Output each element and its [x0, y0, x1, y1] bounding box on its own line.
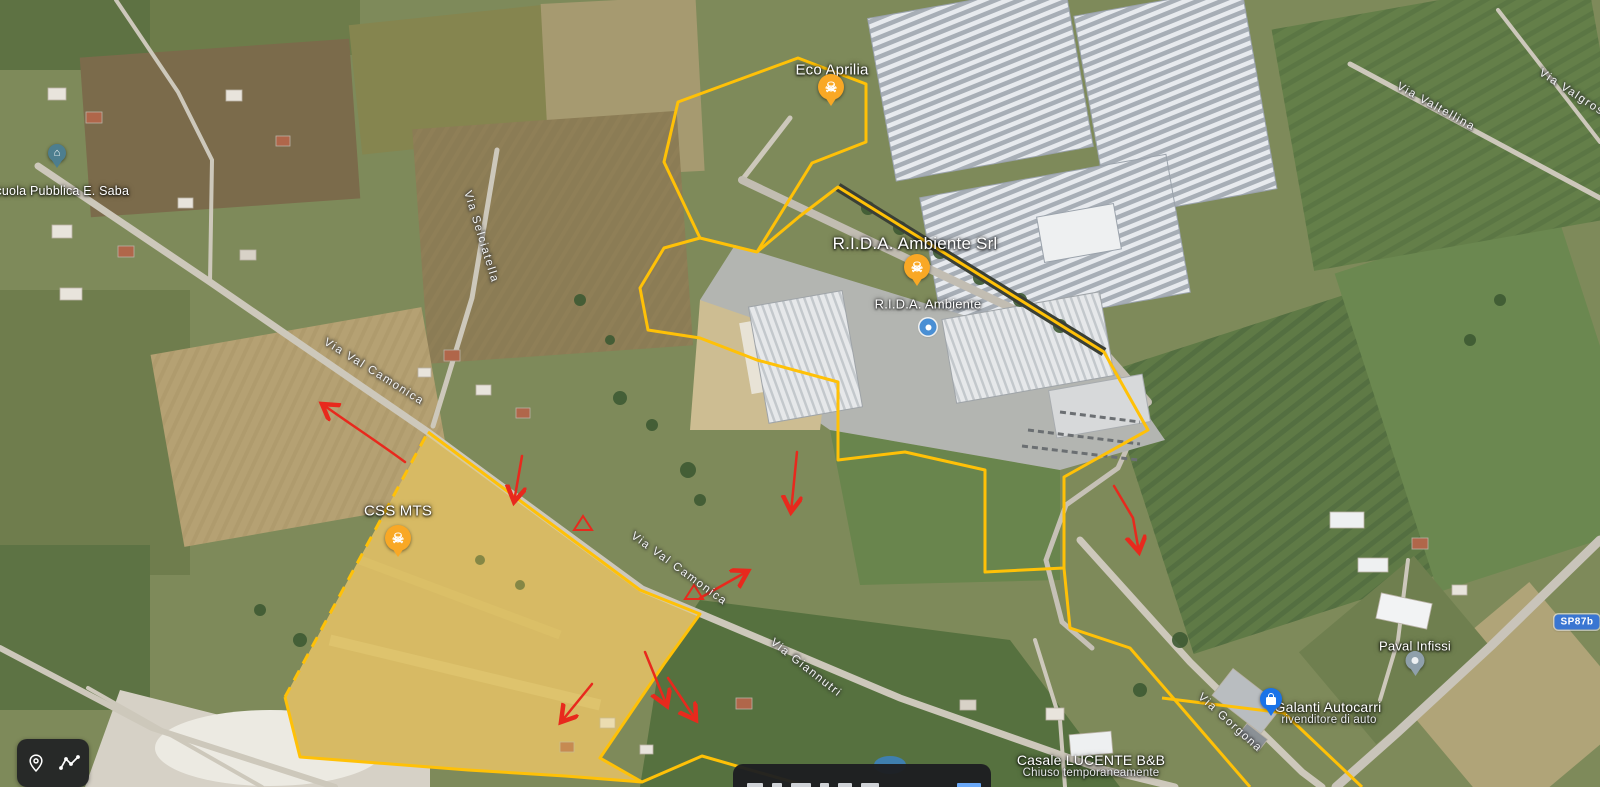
- skull-icon: ☠: [825, 80, 838, 94]
- poi-label-casale[interactable]: Casale LUCENTE B&B: [1017, 752, 1165, 768]
- skull-icon: ☠: [911, 260, 924, 274]
- clipped-text-fragment: [791, 783, 811, 787]
- poi-label-rida-marker[interactable]: R.I.D.A. Ambiente: [875, 297, 982, 312]
- map-toolbar[interactable]: [17, 739, 89, 787]
- clipped-text-fragment: [772, 783, 782, 787]
- skull-icon: ☠: [392, 531, 405, 545]
- css-mts-hazard-pin[interactable]: ☠: [385, 525, 411, 563]
- eco-aprilia-hazard-pin[interactable]: ☠: [818, 74, 844, 112]
- poi-label-school[interactable]: Scuola Pubblica E. Saba: [0, 184, 129, 198]
- poi-dot-icon: [1412, 657, 1419, 664]
- measure-path-icon: [59, 753, 81, 773]
- clipped-text-fragments: [747, 783, 981, 787]
- clipped-text-fragment: [861, 783, 879, 787]
- poi-sublabel-galanti: rivenditore di auto: [1281, 714, 1376, 726]
- galanti-store-pin[interactable]: [1260, 688, 1282, 722]
- location-pin-icon: [26, 753, 46, 773]
- poi-sublabel-casale: Chiuso temporaneamente: [1023, 767, 1160, 779]
- rida-hazard-pin[interactable]: ☠: [904, 254, 930, 292]
- paval-pin[interactable]: [1406, 651, 1425, 682]
- poi-label-rida-title[interactable]: R.I.D.A. Ambiente Srl: [833, 234, 998, 254]
- poi-dot-icon: [925, 324, 931, 330]
- shopping-bag-icon: [1266, 697, 1276, 705]
- poi-label-css-mts[interactable]: CSS MTS: [364, 503, 432, 520]
- measure-button[interactable]: [56, 749, 84, 777]
- bottom-panel-clipped[interactable]: [733, 764, 991, 787]
- my-location-button[interactable]: [22, 749, 50, 777]
- clipped-text-fragment: [820, 783, 829, 787]
- poi-label-galanti[interactable]: Galanti Autocarri: [1275, 699, 1382, 715]
- route-badge-sp87b: SP87b: [1554, 615, 1599, 630]
- rida-poi-circle[interactable]: [920, 319, 937, 336]
- clipped-text-fragment: [838, 783, 852, 787]
- clipped-link-fragment: [957, 783, 981, 787]
- school-icon: ⌂: [54, 148, 61, 159]
- satellite-map[interactable]: Via Val Camonica Via Val Camonica Via Se…: [0, 0, 1600, 787]
- school-pin[interactable]: ⌂: [48, 144, 66, 174]
- clipped-text-fragment: [747, 783, 763, 787]
